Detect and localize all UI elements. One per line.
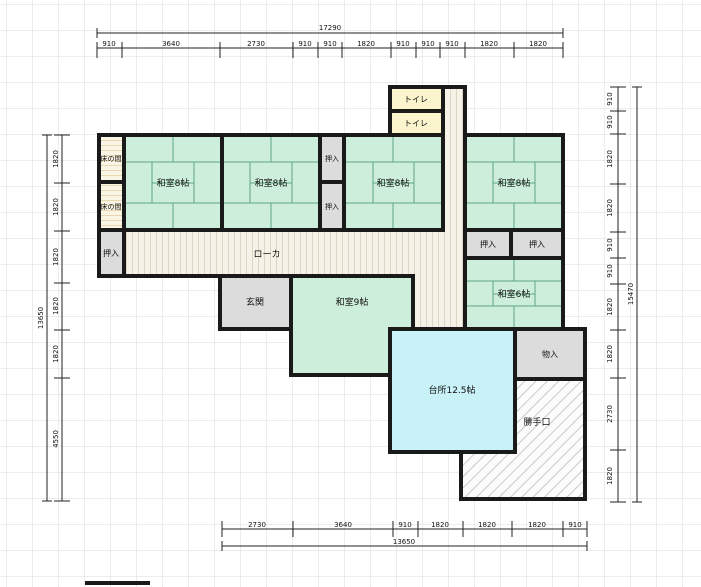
dim-value: 1820 bbox=[606, 150, 614, 168]
label-washitsu6: 和室6帖 bbox=[498, 288, 531, 300]
dim-value: 3640 bbox=[334, 521, 352, 529]
dim-value: 910 bbox=[298, 40, 311, 48]
dim-value: 1820 bbox=[52, 198, 60, 216]
bottom-left-line bbox=[85, 581, 150, 585]
dim-value: 1820 bbox=[606, 298, 614, 316]
label-kitchen: 台所12.5帖 bbox=[428, 384, 475, 396]
label-genkan: 玄関 bbox=[246, 296, 264, 308]
label-washitsu9: 和室9帖 bbox=[336, 296, 369, 308]
dim-total-value: 13650 bbox=[393, 538, 415, 546]
dim-value: 910 bbox=[396, 40, 409, 48]
wall-segment bbox=[318, 137, 322, 228]
dim-value: 1820 bbox=[480, 40, 498, 48]
wall-segment bbox=[392, 109, 441, 113]
wall-segment bbox=[463, 228, 565, 232]
dim-value: 1820 bbox=[52, 150, 60, 168]
wall-segment bbox=[509, 232, 513, 256]
wall-segment bbox=[289, 274, 293, 377]
dim-value: 910 bbox=[102, 40, 115, 48]
wall-segment bbox=[388, 85, 467, 89]
wall-segment bbox=[583, 327, 587, 501]
corridor-extension bbox=[415, 274, 463, 331]
wall-segment bbox=[388, 327, 587, 331]
wall-segment bbox=[97, 180, 126, 184]
wall-segment bbox=[388, 85, 392, 133]
wall-segment bbox=[459, 497, 587, 501]
dim-value: 2730 bbox=[247, 40, 265, 48]
label-corridor: ローカ bbox=[253, 249, 280, 260]
dim-value: 910 bbox=[606, 264, 614, 277]
dim-value: 2730 bbox=[606, 405, 614, 423]
wall-segment bbox=[218, 327, 293, 331]
label-washitsu8-1: 和室8帖 bbox=[157, 177, 190, 189]
wall-segment bbox=[463, 256, 565, 260]
label-tokonoma-2: 床の間 bbox=[101, 202, 122, 211]
dim-value: 1820 bbox=[478, 521, 496, 529]
wall-segment bbox=[388, 327, 392, 454]
floor-plan-page: トイレ トイレ 床の間 床の間 和室8帖 和室8帖 和室8帖 和室8帖 押入 押… bbox=[0, 0, 701, 587]
wall-segment bbox=[97, 274, 415, 278]
dim-value: 910 bbox=[568, 521, 581, 529]
dim-value: 910 bbox=[445, 40, 458, 48]
label-monoire: 物入 bbox=[542, 349, 558, 359]
dim-value: 910 bbox=[398, 521, 411, 529]
dim-value: 910 bbox=[323, 40, 336, 48]
dim-value: 910 bbox=[421, 40, 434, 48]
dim-value: 1820 bbox=[606, 199, 614, 217]
wall-segment bbox=[463, 133, 565, 137]
dim-value: 1820 bbox=[606, 345, 614, 363]
wall-segment bbox=[441, 85, 445, 232]
label-oshiire-4: 押入 bbox=[480, 239, 496, 249]
wall-segment bbox=[97, 228, 445, 232]
label-katteguchi: 勝手口 bbox=[523, 416, 550, 428]
dim-value: 910 bbox=[606, 92, 614, 105]
dim-value: 1820 bbox=[528, 521, 546, 529]
label-tokonoma-1: 床の間 bbox=[101, 154, 122, 163]
floor-plan-drawing: トイレ トイレ 床の間 床の間 和室8帖 和室8帖 和室8帖 和室8帖 押入 押… bbox=[0, 0, 701, 587]
wall-segment bbox=[318, 180, 346, 184]
label-oshiire-1: 押入 bbox=[325, 154, 339, 163]
dim-value: 1820 bbox=[606, 467, 614, 485]
dim-value: 2730 bbox=[248, 521, 266, 529]
dim-value: 1820 bbox=[529, 40, 547, 48]
dim-total-value: 15470 bbox=[627, 283, 635, 305]
label-toilet-1: トイレ bbox=[404, 95, 428, 104]
wall-segment bbox=[561, 133, 565, 331]
dim-value: 1820 bbox=[52, 248, 60, 266]
label-oshiire-3: 押入 bbox=[103, 248, 119, 258]
dim-value: 1820 bbox=[52, 345, 60, 363]
dim-value: 1820 bbox=[431, 521, 449, 529]
wall-segment bbox=[218, 274, 222, 331]
dim-value: 910 bbox=[606, 115, 614, 128]
label-washitsu8-4: 和室8帖 bbox=[498, 177, 531, 189]
dim-value: 1820 bbox=[52, 297, 60, 315]
dim-total-value: 13650 bbox=[37, 307, 45, 329]
wall-segment bbox=[513, 327, 517, 454]
label-oshiire-5: 押入 bbox=[529, 239, 545, 249]
wall-segment bbox=[459, 450, 463, 501]
dim-value: 910 bbox=[606, 238, 614, 251]
wall-segment bbox=[122, 133, 126, 278]
label-washitsu8-3: 和室8帖 bbox=[377, 177, 410, 189]
dim-total-value: 17290 bbox=[319, 24, 341, 32]
wall-segment bbox=[342, 137, 346, 228]
wall-segment bbox=[388, 450, 517, 454]
wall-segment bbox=[220, 137, 224, 228]
dim-value: 4550 bbox=[52, 430, 60, 448]
label-oshiire-2: 押入 bbox=[325, 202, 339, 211]
wall-segment bbox=[97, 133, 445, 137]
corridor-floor bbox=[126, 232, 463, 274]
wall-segment bbox=[463, 85, 467, 331]
dim-value: 3640 bbox=[162, 40, 180, 48]
wall-segment bbox=[517, 377, 587, 381]
label-washitsu8-2: 和室8帖 bbox=[255, 177, 288, 189]
label-toilet-2: トイレ bbox=[404, 119, 428, 128]
dim-value: 1820 bbox=[357, 40, 375, 48]
